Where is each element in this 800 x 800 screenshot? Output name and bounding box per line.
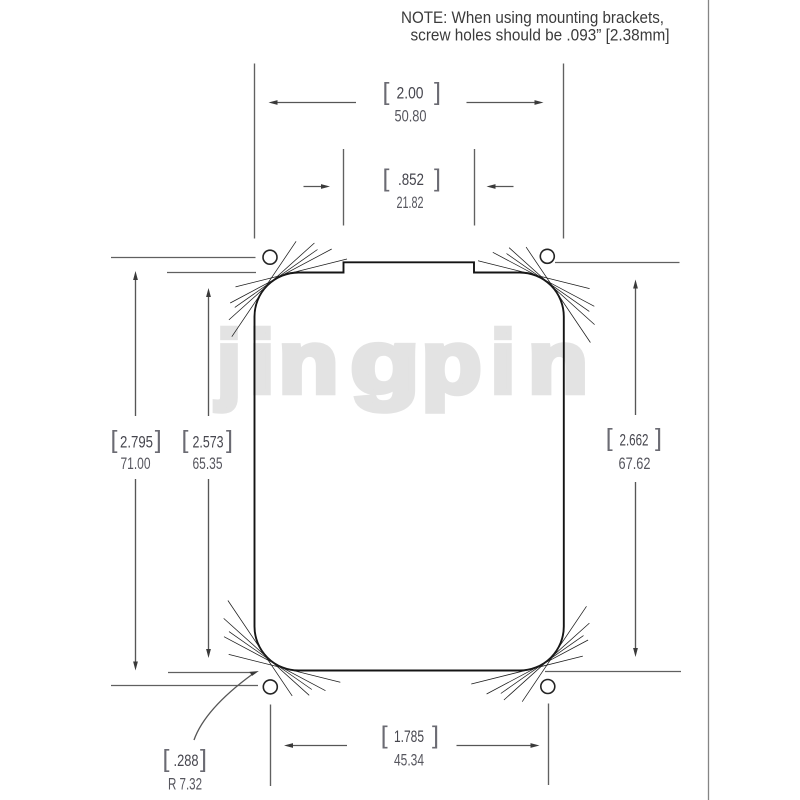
svg-text:45.34: 45.34 [394,752,424,770]
svg-text:]: ] [434,164,441,192]
svg-text:p: p [422,313,482,412]
svg-text:21.82: 21.82 [397,194,424,212]
svg-text:[: [ [381,721,388,749]
svg-text:[: [ [606,424,613,452]
svg-text:[: [ [163,745,170,773]
svg-text:g: g [351,313,420,412]
svg-text:2.795: 2.795 [120,433,153,451]
svg-text:2.573: 2.573 [193,433,224,451]
svg-text:]: ] [434,78,441,106]
svg-text:j: j [215,313,241,412]
svg-text:2.662: 2.662 [620,431,649,449]
svg-text:screw holes should be .093” [2: screw holes should be .093” [2.38mm] [411,26,670,45]
svg-text:]: ] [155,426,162,454]
svg-text:]: ] [226,426,233,454]
svg-text:65.35: 65.35 [193,455,223,473]
svg-text:2.00: 2.00 [397,85,424,103]
svg-text:1.785: 1.785 [394,728,424,746]
svg-text:]: ] [432,721,439,749]
svg-text:[: [ [111,426,118,454]
svg-text:[: [ [383,78,390,106]
svg-text:n: n [279,313,339,412]
svg-text:R 7.32: R 7.32 [168,776,202,794]
svg-text:i: i [250,313,274,412]
svg-text:.288: .288 [174,752,199,770]
svg-text:[: [ [383,164,390,192]
svg-text:i: i [491,313,515,412]
svg-text:67.62: 67.62 [619,455,651,473]
svg-text:.852: .852 [398,171,424,189]
svg-text:]: ] [200,745,207,773]
svg-text:50.80: 50.80 [395,108,427,126]
svg-text:]: ] [655,424,662,452]
svg-text:n: n [528,313,588,412]
svg-text:NOTE: When using mounting brac: NOTE: When using mounting brackets, [401,8,664,27]
svg-text:[: [ [182,426,189,454]
svg-text:71.00: 71.00 [121,455,151,473]
